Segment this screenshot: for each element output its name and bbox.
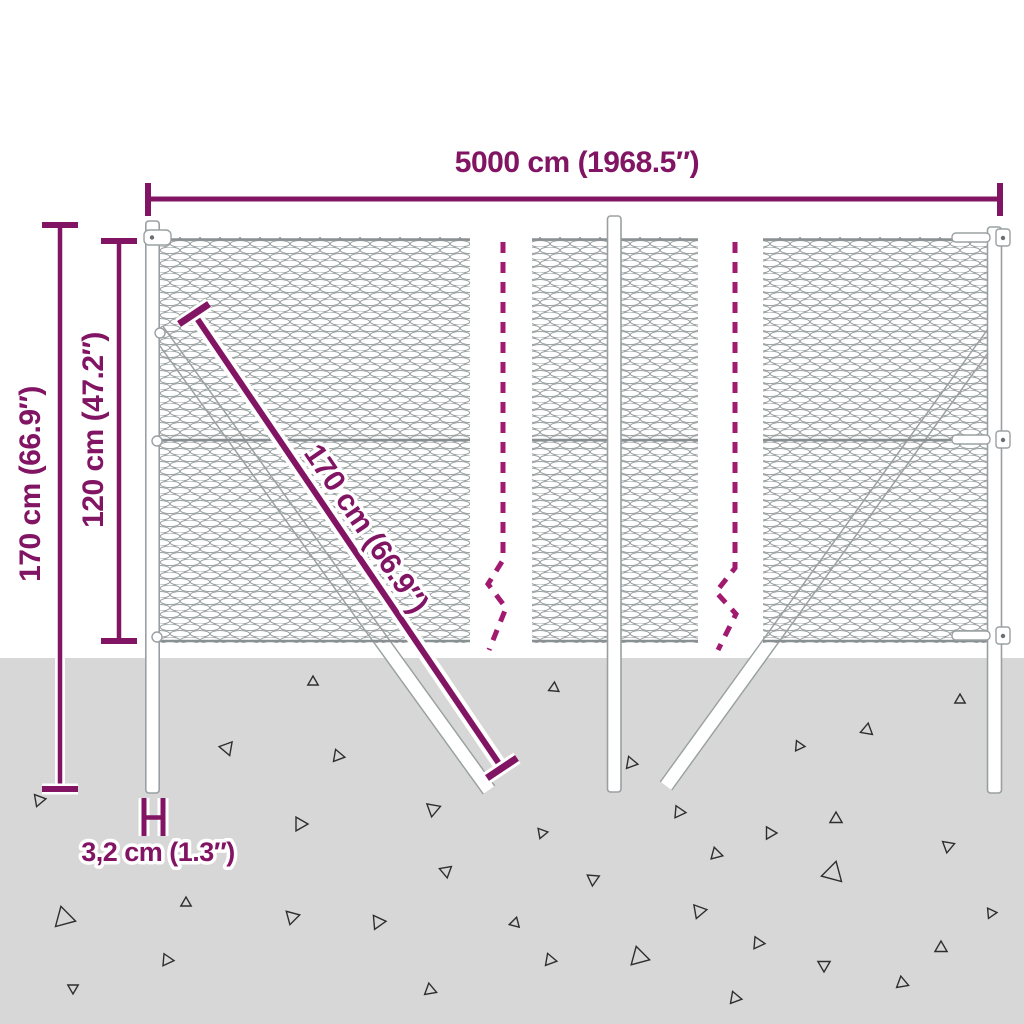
total-height-label: 170 cm (66.9″) [14,386,47,582]
dimension-width: 5000 cm (1968.5″) [148,146,1000,216]
break-mark-left [488,242,506,650]
post-diameter-label: 3,2 cm (1.3″) [81,837,235,867]
dimension-mesh-height: 120 cm (47.2″) [77,241,137,641]
fence-diagram-svg: 5000 cm (1968.5″) 170 cm (66.9″) 120 cm … [0,0,1024,1024]
width-label: 5000 cm (1968.5″) [455,146,699,179]
post-middle [608,216,622,792]
break-mark-right [716,242,736,650]
product-dimension-diagram: 5000 cm (1968.5″) 170 cm (66.9″) 120 cm … [0,0,1024,1024]
mesh-height-label: 120 cm (47.2″) [77,332,110,528]
